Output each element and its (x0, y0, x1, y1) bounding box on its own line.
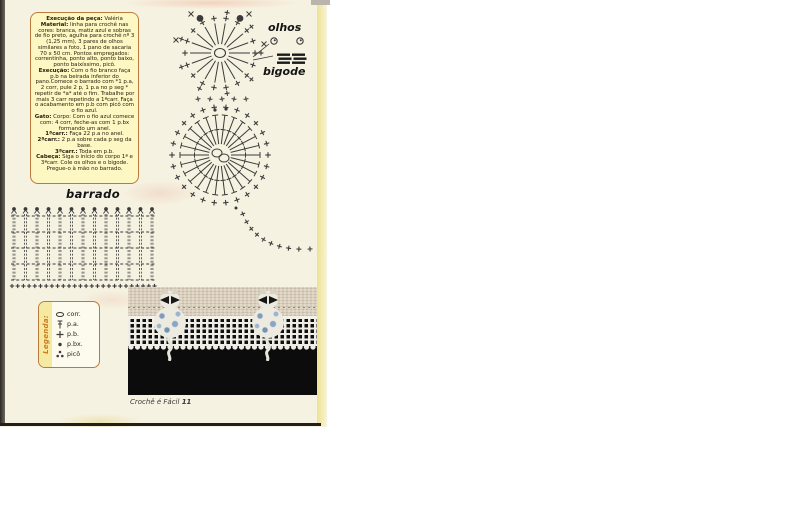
caption-page-number: 11 (182, 398, 192, 406)
legend-item: corr. (55, 310, 98, 319)
legend-item: p.a. (55, 320, 98, 329)
cat-tail (261, 335, 275, 361)
sc-stitch-icon (55, 330, 65, 339)
barrado-grid-diagram (10, 207, 157, 288)
cat-whisker-left (160, 296, 169, 304)
cat-ear-left (259, 288, 267, 294)
tail-stitches-diagram (235, 207, 313, 252)
legend-item: p.bx. (55, 340, 98, 349)
olhos-label: olhos (268, 21, 301, 34)
crocheted-cat (150, 291, 190, 361)
cat-ear-right (171, 288, 179, 294)
eyes-whiskers-diagram (253, 38, 307, 64)
cat-whisker-left (258, 296, 267, 304)
cat-ear-right (269, 288, 277, 294)
instruction-text: Execução da peça: ValériaMaterial: linha… (34, 17, 135, 173)
slip-stitch-icon (55, 340, 65, 349)
caption-text: Crochê é Fácil (130, 398, 182, 406)
legend-title-strip: Legenda: (39, 302, 52, 367)
cat-head (258, 291, 278, 309)
cat-ear-left (161, 288, 169, 294)
legend-item-label: corr. (67, 311, 81, 318)
page-background: Execução da peça: ValériaMaterial: linha… (0, 0, 327, 427)
cat-whisker-right (269, 296, 278, 304)
head-motif-diagram (174, 10, 267, 96)
cat-whisker-right (171, 296, 180, 304)
treble-stitch-icon (55, 320, 65, 329)
legend-item-label: p.b. (67, 331, 79, 338)
barrado-label: barrado (66, 187, 120, 201)
chain-stitch-icon (55, 310, 65, 319)
cat-body (252, 307, 284, 338)
photo-caption: Crochê é Fácil 11 (130, 398, 191, 406)
legend-item: p.b. (55, 330, 98, 339)
cat-tail (163, 335, 177, 361)
legend-item-label: picô (67, 351, 80, 358)
cat-body (154, 307, 186, 338)
legend-item-label: p.a. (67, 321, 79, 328)
picot-stitch-icon (55, 350, 65, 359)
page-left-edge (0, 0, 5, 426)
neck-stitches-diagram (196, 97, 249, 112)
page-right-edge (317, 0, 326, 426)
legend-item: picô (55, 350, 98, 359)
crocheted-cat (248, 291, 288, 361)
scan-corner-mark (311, 0, 330, 5)
legend-items: corr.p.a.p.b.p.bx.picô (52, 302, 99, 367)
legend-title: Legenda: (42, 315, 50, 354)
cat-head (160, 291, 180, 309)
instruction-box: Execução da peça: ValériaMaterial: linha… (30, 12, 139, 184)
bigode-label: bigode (263, 65, 305, 78)
legend-item-label: p.bx. (67, 341, 83, 348)
scanned-magazine-page-canvas: Execução da peça: ValériaMaterial: linha… (0, 0, 800, 506)
finished-work-photo (128, 287, 318, 395)
body-motif-diagram (169, 105, 271, 206)
legend-box: Legenda: corr.p.a.p.b.p.bx.picô (38, 301, 100, 368)
page-bottom-edge (0, 423, 321, 426)
